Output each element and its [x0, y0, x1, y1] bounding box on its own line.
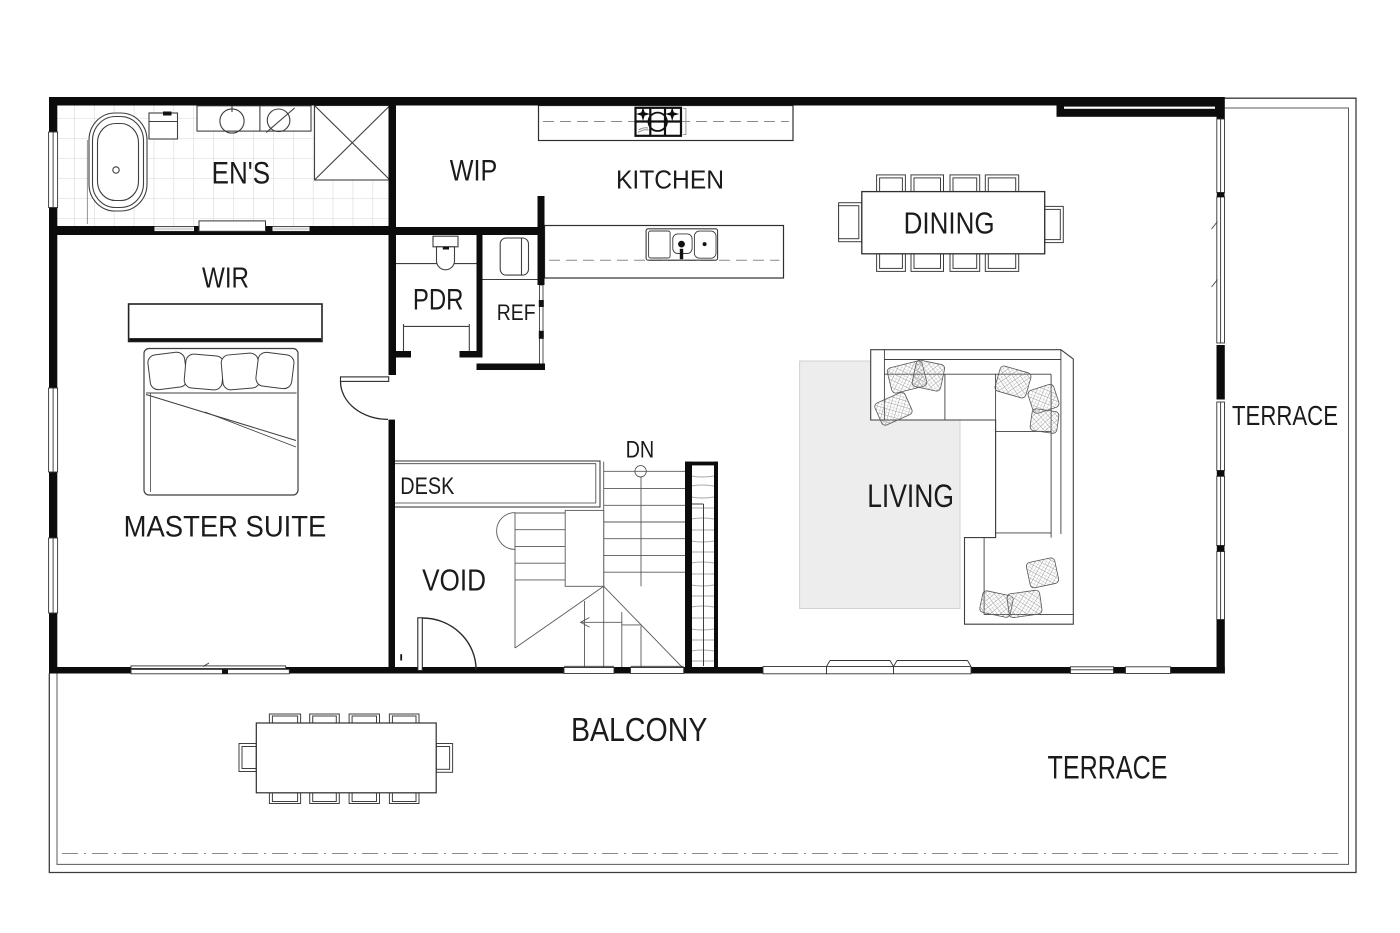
svg-text:DN: DN: [626, 438, 655, 464]
svg-text:PDR: PDR: [413, 284, 464, 317]
svg-text:LIVING: LIVING: [867, 478, 954, 514]
svg-text:WIP: WIP: [450, 155, 498, 188]
svg-text:DESK: DESK: [400, 473, 454, 500]
svg-text:MASTER SUITE: MASTER SUITE: [124, 510, 327, 543]
svg-text:DINING: DINING: [904, 205, 995, 240]
svg-text:EN'S: EN'S: [212, 154, 271, 190]
svg-text:KITCHEN: KITCHEN: [616, 164, 724, 194]
svg-text:REF: REF: [497, 300, 536, 325]
svg-text:TERRACE: TERRACE: [1048, 749, 1168, 786]
svg-text:BALCONY: BALCONY: [571, 712, 708, 749]
svg-text:TERRACE: TERRACE: [1232, 400, 1338, 431]
svg-text:WIR: WIR: [202, 262, 249, 294]
svg-text:VOID: VOID: [422, 563, 486, 598]
